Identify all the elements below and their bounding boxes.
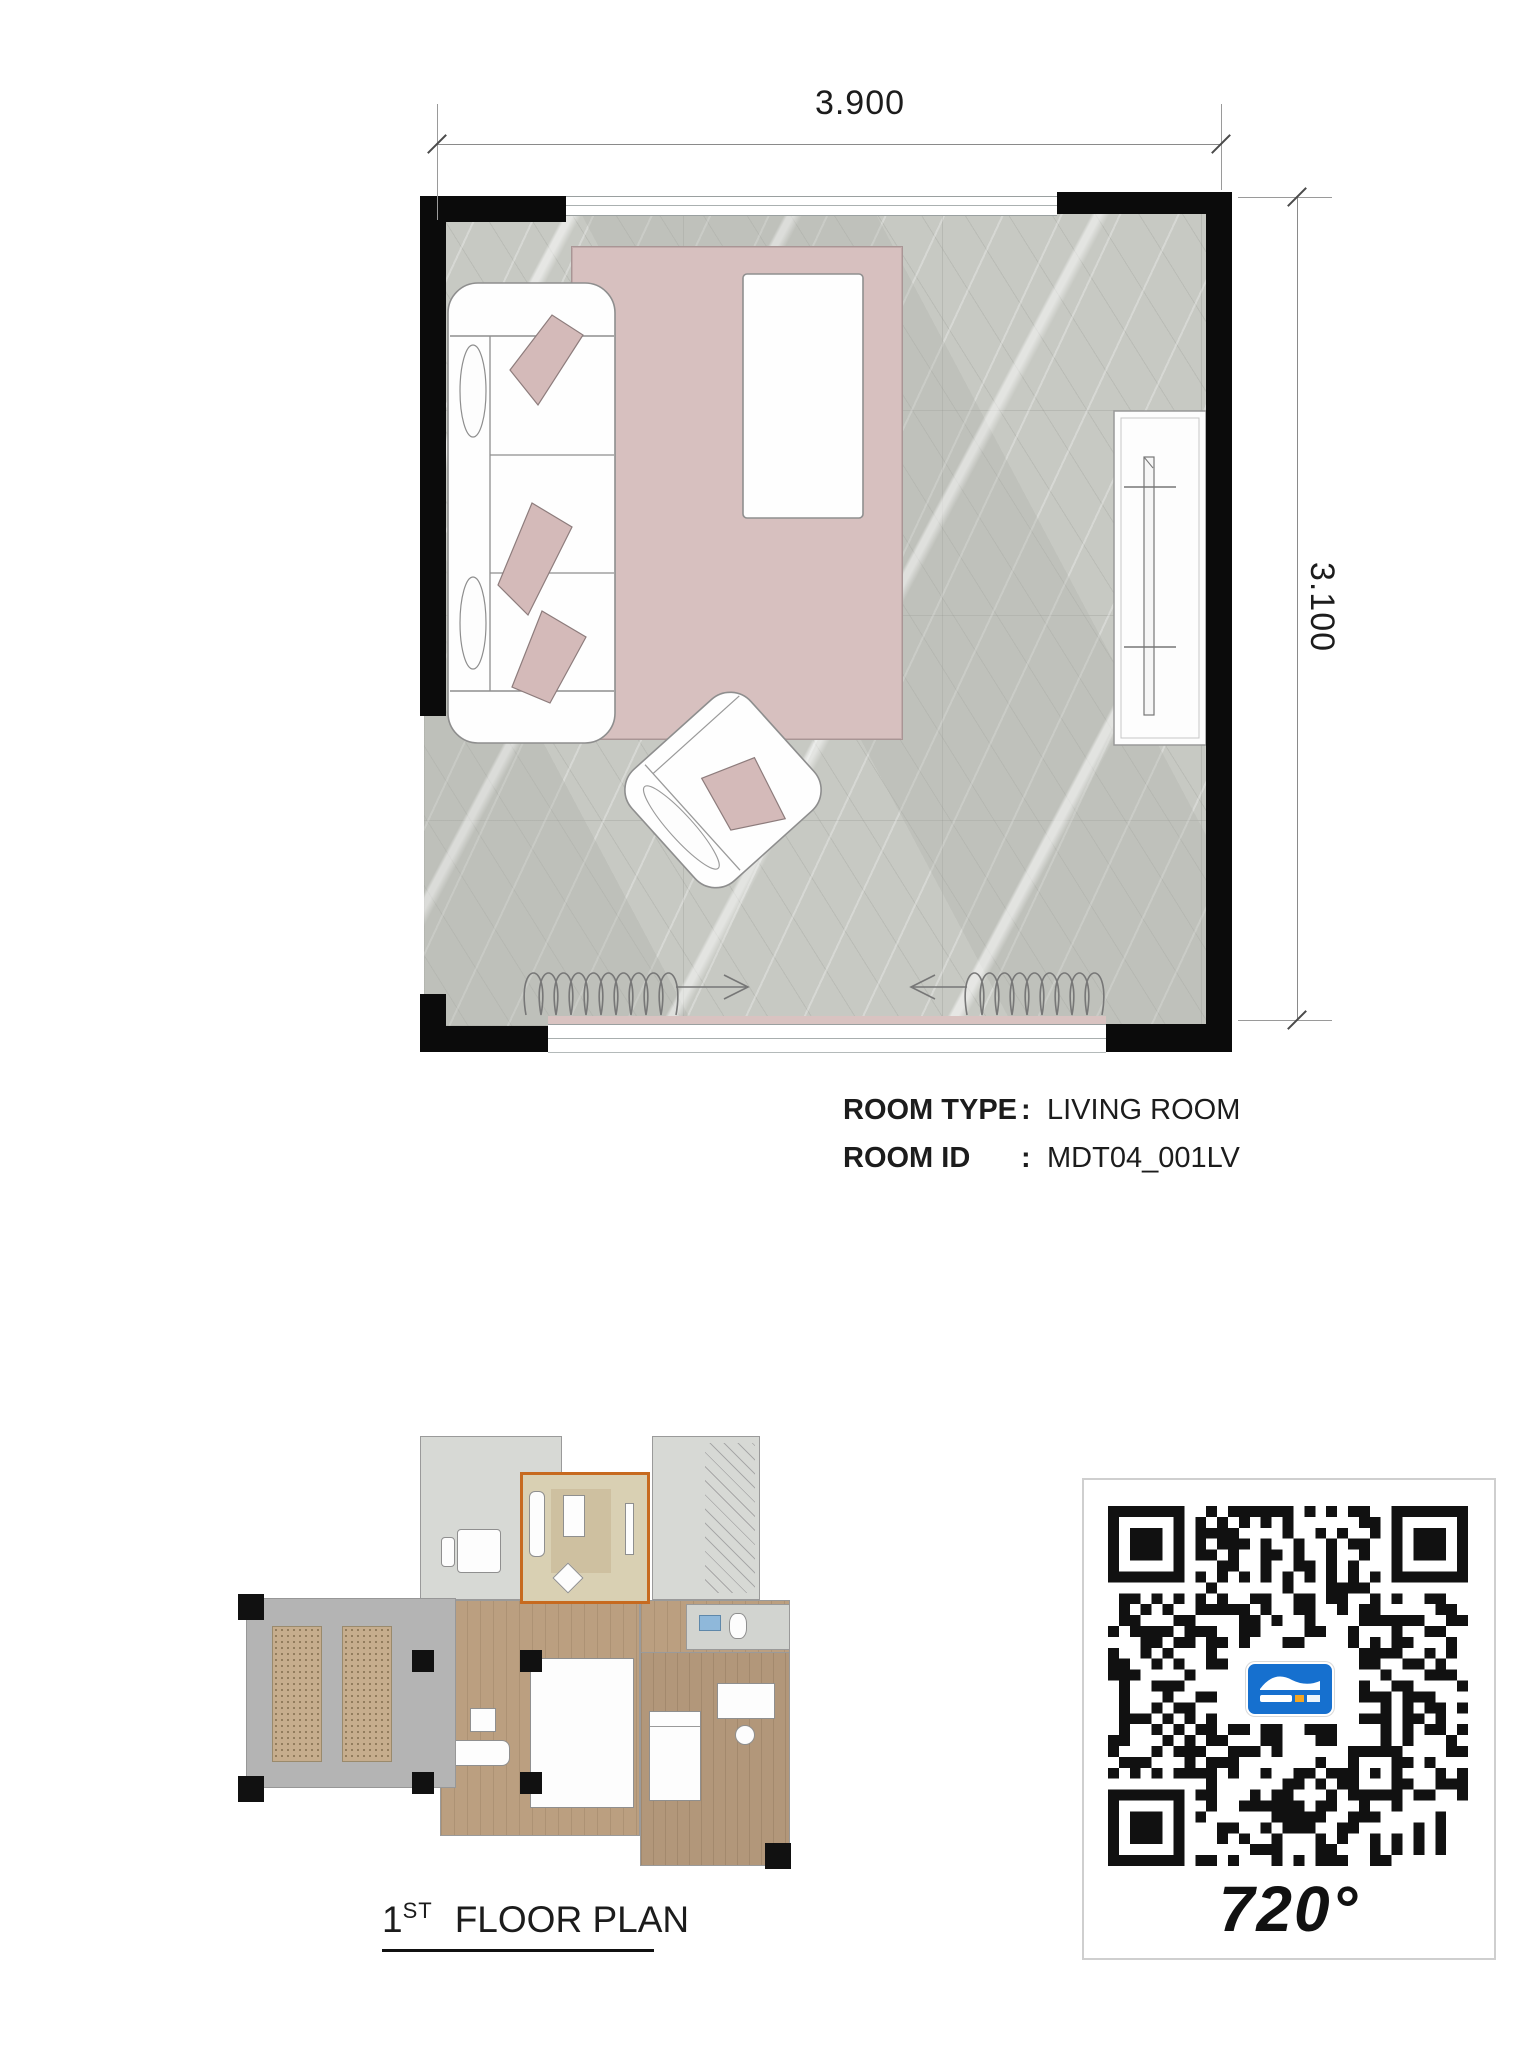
curtain-right-icon	[911, 973, 1104, 1015]
wall-right	[1206, 192, 1232, 1052]
mini-column	[238, 1594, 264, 1620]
qr-center-logo	[1246, 1662, 1334, 1716]
room-type-label: ROOM TYPE	[843, 1096, 1021, 1125]
mini-terrace-mat	[342, 1626, 392, 1762]
qr-card: 720°	[1082, 1478, 1496, 1960]
mini-stairs	[652, 1436, 760, 1600]
mini-table	[457, 1529, 501, 1573]
window-bottom	[548, 1024, 1106, 1070]
extension-line-top-left	[437, 104, 438, 220]
coffee-table	[743, 274, 863, 518]
room-type-value: LIVING ROOM	[1047, 1096, 1240, 1125]
dimension-line-top	[437, 144, 1222, 145]
mini-column	[412, 1772, 434, 1794]
dimension-line-right	[1297, 197, 1298, 1020]
extension-line-right-top	[1238, 197, 1332, 198]
room-type-row: ROOM TYPE : LIVING ROOM	[843, 1096, 1263, 1125]
room-id-value: MDT04_001LV	[1047, 1144, 1240, 1173]
mini-void	[530, 1658, 634, 1808]
mini-bathroom	[686, 1604, 790, 1650]
furniture-layer	[420, 195, 1232, 1052]
room-id-separator: :	[1021, 1144, 1047, 1173]
extension-line-top-right	[1221, 104, 1222, 190]
mini-sink	[699, 1615, 721, 1631]
window-bottom-sill	[548, 1016, 1106, 1024]
mini-sofa	[448, 1740, 510, 1766]
caption-ordinal: ST	[403, 1898, 433, 1923]
armchair	[613, 681, 832, 900]
tv-console	[1114, 411, 1206, 745]
qr-logo-glyph	[1248, 1664, 1332, 1714]
wall-bottom-right	[1106, 1024, 1232, 1052]
floor-plan-sheet: 3.900 3.100 ROOM TYPE : LIVING ROOM ROOM…	[0, 0, 1536, 2048]
mini-desk	[717, 1683, 775, 1719]
wall-bottom-left-horizontal	[420, 1026, 548, 1052]
mini-column	[520, 1772, 542, 1794]
floor-plan-caption: 1STFLOOR PLAN	[382, 1898, 654, 1952]
mini-side-table	[470, 1708, 496, 1732]
mini-toilet	[729, 1613, 747, 1639]
mini-column	[412, 1650, 434, 1672]
mini-column	[238, 1776, 264, 1802]
mini-desk-chair	[735, 1725, 755, 1745]
mini-chair	[441, 1537, 455, 1567]
mini-lr-sofa	[529, 1491, 545, 1557]
mini-column	[765, 1843, 791, 1869]
mini-lr-table	[563, 1495, 585, 1537]
tv-icon	[1144, 457, 1154, 715]
room-id-label: ROOM ID	[843, 1144, 1021, 1173]
caption-number: 1	[382, 1899, 403, 1940]
curtain-left-icon	[524, 973, 748, 1015]
dimension-right-label: 3.100	[1302, 522, 1341, 692]
extension-line-right-bottom	[1238, 1020, 1332, 1021]
mini-terrace-mat	[272, 1626, 322, 1762]
window-top	[566, 196, 1057, 216]
caption-title: FLOOR PLAN	[455, 1899, 689, 1940]
mini-bedroom	[640, 1652, 790, 1866]
qr-720-label: 720°	[1084, 1872, 1494, 1946]
mini-living-room-highlight	[520, 1472, 650, 1604]
mini-bed	[649, 1711, 701, 1801]
dimension-top-label: 3.900	[760, 84, 960, 123]
mini-stairs-hatch	[705, 1443, 755, 1593]
wall-left	[420, 196, 446, 716]
room-id-row: ROOM ID : MDT04_001LV	[843, 1144, 1263, 1173]
mini-lr-tv	[625, 1503, 634, 1555]
first-floor-plan-thumbnail	[230, 1430, 790, 1908]
room-info: ROOM TYPE : LIVING ROOM ROOM ID : MDT04_…	[843, 1096, 1263, 1192]
mini-column	[520, 1650, 542, 1672]
room-type-separator: :	[1021, 1096, 1047, 1125]
